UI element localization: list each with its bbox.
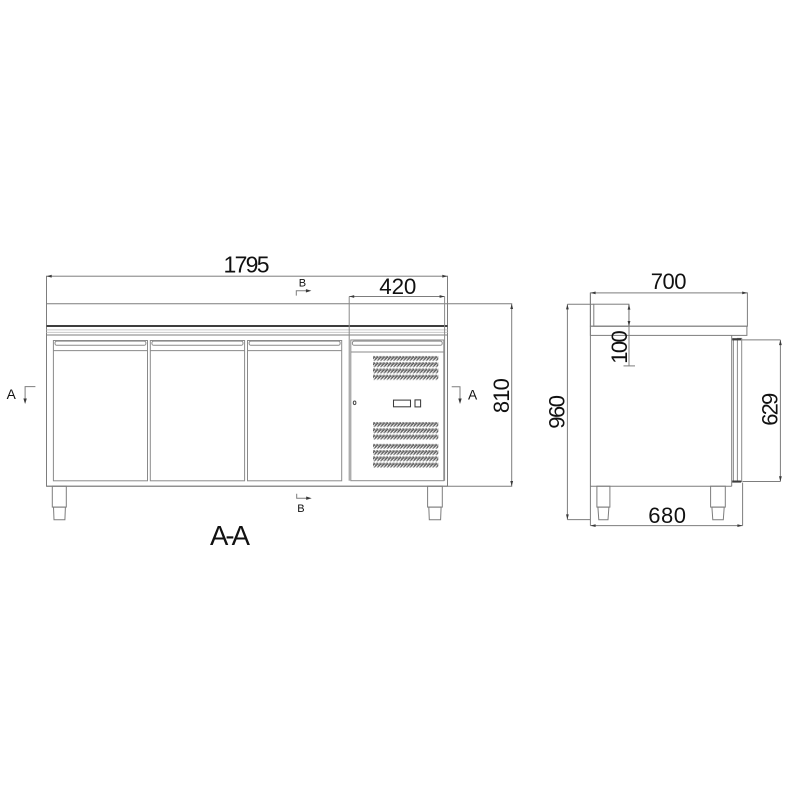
- svg-text:A: A: [7, 387, 17, 402]
- svg-text:810: 810: [489, 378, 514, 413]
- svg-text:629: 629: [758, 393, 783, 426]
- svg-text:B: B: [299, 278, 306, 290]
- svg-text:A: A: [468, 388, 478, 403]
- svg-text:420: 420: [379, 274, 416, 299]
- svg-text:A-A: A-A: [210, 520, 251, 551]
- svg-text:960: 960: [544, 395, 569, 429]
- svg-text:100: 100: [607, 330, 632, 364]
- svg-text:700: 700: [651, 269, 687, 294]
- svg-text:680: 680: [648, 503, 686, 528]
- svg-text:1795: 1795: [224, 252, 270, 278]
- svg-text:B: B: [297, 503, 304, 515]
